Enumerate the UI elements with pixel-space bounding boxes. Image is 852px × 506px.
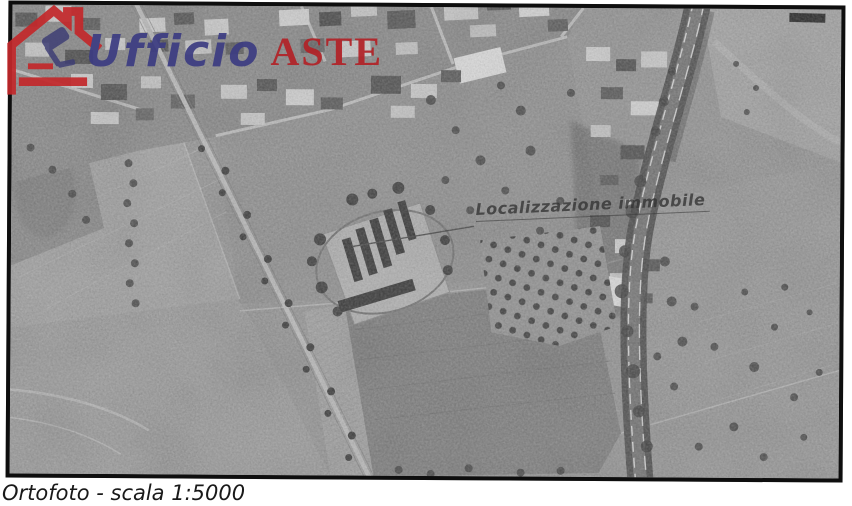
orthophoto-frame bbox=[6, 0, 846, 482]
photo-caption: Ortofoto - scala 1:5000 bbox=[2, 481, 245, 505]
orthophoto-image bbox=[10, 4, 842, 478]
scanned-document-page: Ufficio ASTE Localizzazione immobile Ort… bbox=[0, 0, 852, 506]
